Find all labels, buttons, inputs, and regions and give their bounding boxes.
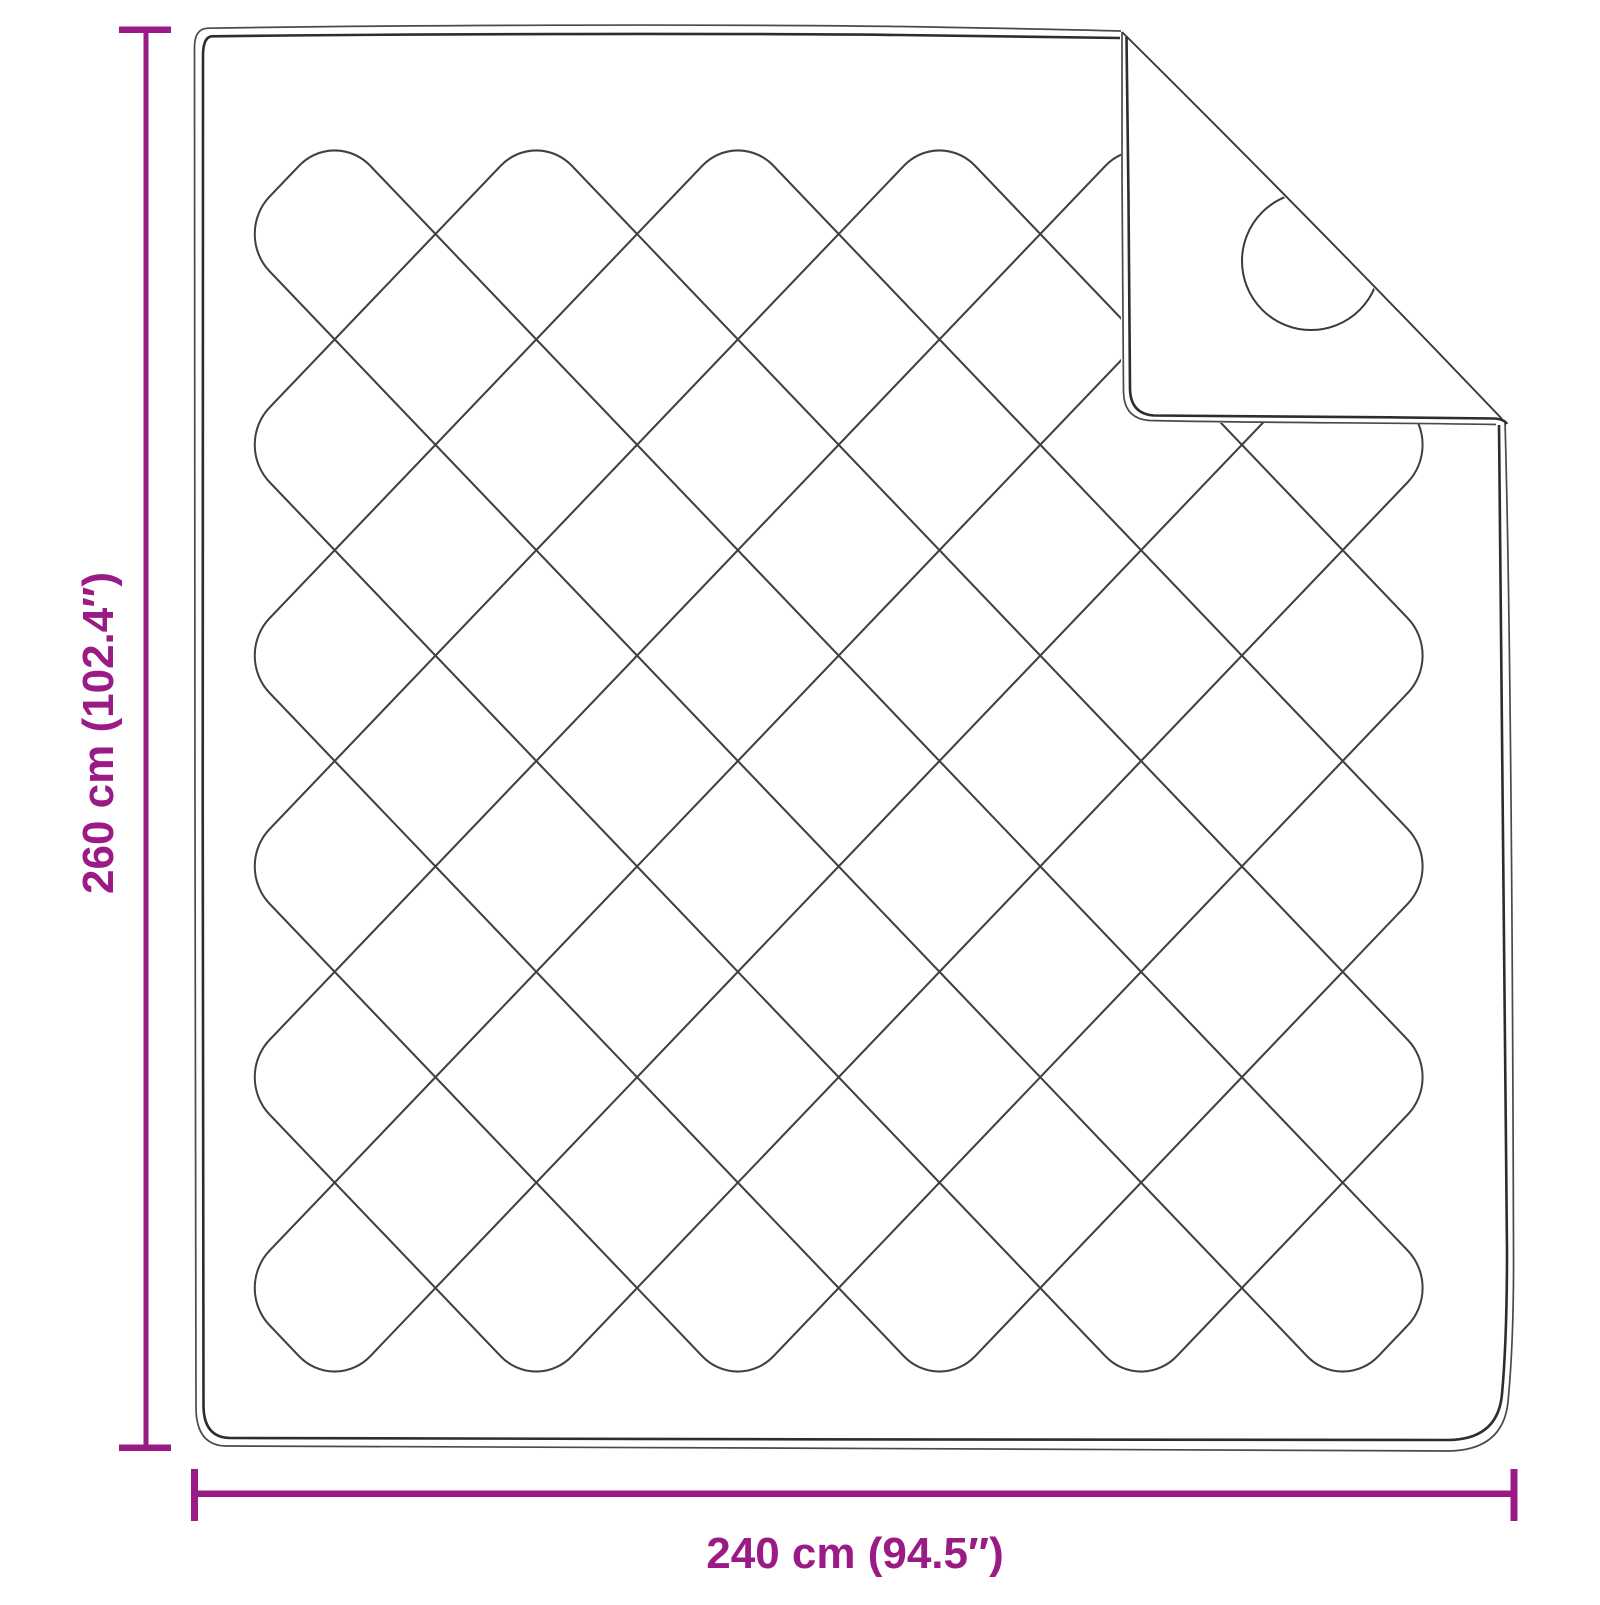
svg-text:260 cm (102.4″): 260 cm (102.4″) xyxy=(74,572,123,894)
svg-text:240 cm (94.5″): 240 cm (94.5″) xyxy=(706,1529,1003,1578)
